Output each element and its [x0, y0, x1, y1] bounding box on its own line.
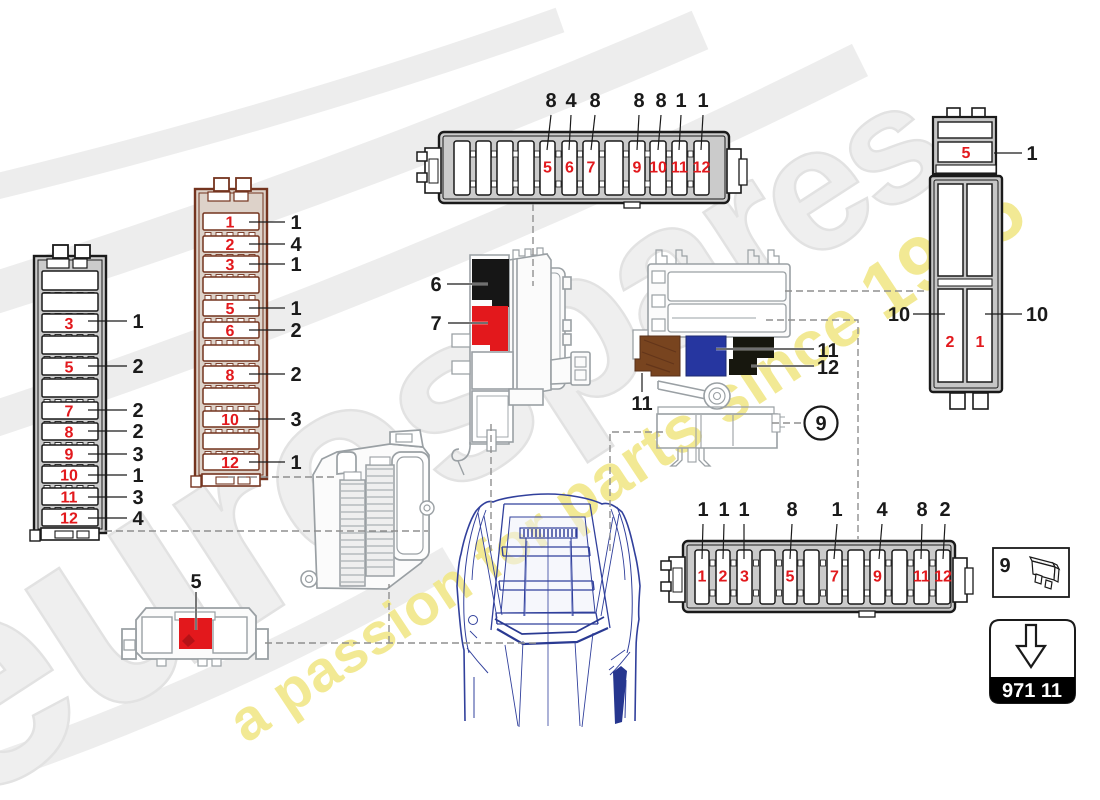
svg-text:2: 2: [946, 334, 955, 351]
svg-text:3: 3: [226, 257, 235, 274]
svg-text:1: 1: [290, 298, 301, 320]
svg-text:12: 12: [693, 160, 711, 177]
svg-text:8: 8: [786, 499, 797, 521]
svg-text:1: 1: [976, 334, 985, 351]
svg-text:5: 5: [962, 145, 971, 162]
svg-text:11: 11: [61, 489, 78, 506]
svg-text:8: 8: [545, 90, 556, 112]
svg-text:4: 4: [290, 234, 302, 256]
svg-text:9: 9: [815, 413, 826, 435]
svg-text:8: 8: [589, 90, 600, 112]
svg-text:1: 1: [226, 214, 235, 231]
svg-text:11: 11: [671, 160, 688, 177]
svg-text:7: 7: [587, 160, 596, 177]
svg-text:8: 8: [633, 90, 644, 112]
svg-text:10: 10: [1026, 304, 1048, 326]
svg-text:5: 5: [190, 571, 201, 593]
svg-text:8: 8: [226, 367, 235, 384]
svg-text:12: 12: [221, 455, 239, 472]
svg-text:10: 10: [221, 412, 239, 429]
svg-text:3: 3: [132, 487, 143, 509]
svg-text:971 11: 971 11: [1002, 680, 1062, 702]
svg-text:2: 2: [939, 499, 950, 521]
svg-text:1: 1: [290, 254, 301, 276]
svg-text:10: 10: [888, 304, 910, 326]
svg-text:2: 2: [290, 364, 301, 386]
svg-text:12: 12: [817, 357, 839, 379]
svg-text:3: 3: [290, 409, 301, 431]
svg-text:1: 1: [675, 90, 686, 112]
svg-text:11: 11: [631, 393, 652, 415]
svg-text:3: 3: [132, 444, 143, 466]
svg-text:4: 4: [565, 90, 577, 112]
svg-text:10: 10: [60, 467, 78, 484]
svg-text:1: 1: [1026, 143, 1037, 165]
svg-text:2: 2: [132, 421, 143, 443]
svg-text:7: 7: [65, 403, 74, 420]
svg-text:2: 2: [719, 569, 728, 586]
svg-text:1: 1: [831, 499, 842, 521]
svg-text:9: 9: [65, 446, 74, 463]
svg-text:5: 5: [65, 359, 74, 376]
svg-text:10: 10: [649, 160, 667, 177]
svg-text:11: 11: [913, 569, 930, 586]
svg-text:6: 6: [430, 274, 441, 296]
svg-text:8: 8: [916, 499, 927, 521]
svg-text:5: 5: [226, 301, 235, 318]
svg-text:2: 2: [132, 356, 143, 378]
svg-text:4: 4: [132, 508, 144, 530]
svg-text:3: 3: [65, 316, 74, 333]
svg-text:9: 9: [873, 569, 882, 586]
svg-text:1: 1: [718, 499, 729, 521]
svg-text:7: 7: [830, 569, 839, 586]
svg-text:12: 12: [934, 569, 952, 586]
svg-text:1: 1: [290, 452, 301, 474]
svg-text:4: 4: [876, 499, 888, 521]
svg-text:2: 2: [132, 400, 143, 422]
svg-text:1: 1: [132, 311, 143, 333]
svg-text:1: 1: [290, 212, 301, 234]
svg-text:1: 1: [738, 499, 749, 521]
svg-text:2: 2: [290, 320, 301, 342]
svg-text:6: 6: [565, 160, 574, 177]
svg-text:7: 7: [430, 313, 441, 335]
svg-text:9: 9: [633, 160, 642, 177]
svg-text:12: 12: [60, 510, 78, 527]
svg-text:3: 3: [740, 569, 749, 586]
svg-text:2: 2: [226, 237, 235, 254]
svg-text:1: 1: [132, 465, 143, 487]
svg-text:5: 5: [786, 569, 795, 586]
svg-text:1: 1: [698, 569, 707, 586]
svg-text:1: 1: [697, 90, 708, 112]
svg-text:6: 6: [226, 323, 235, 340]
svg-text:1: 1: [697, 499, 708, 521]
svg-text:5: 5: [543, 160, 552, 177]
svg-text:8: 8: [65, 424, 74, 441]
svg-text:8: 8: [655, 90, 666, 112]
svg-text:9: 9: [999, 555, 1010, 577]
